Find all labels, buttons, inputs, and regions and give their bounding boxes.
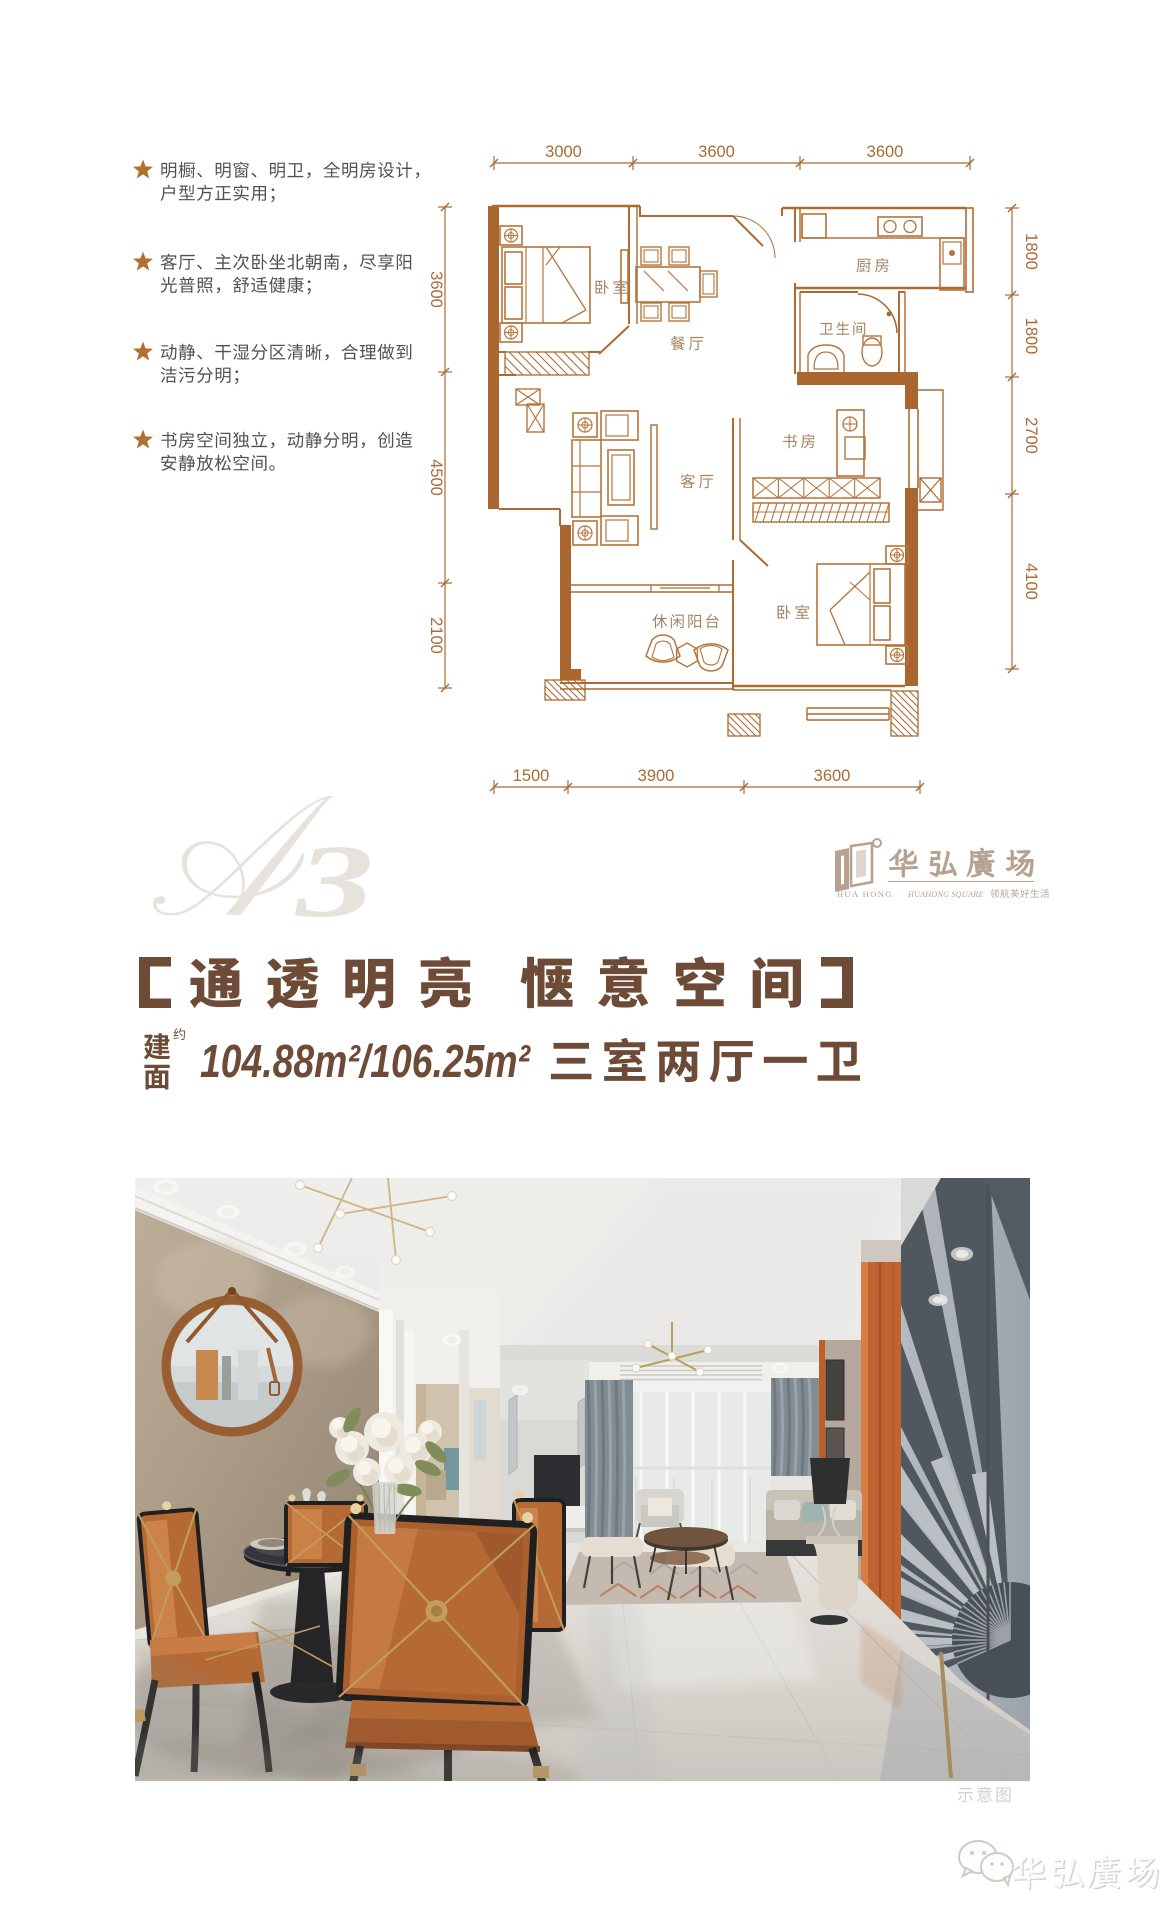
svg-text:3600: 3600: [814, 767, 851, 785]
svg-text:3: 3: [294, 823, 374, 938]
svg-text:3600: 3600: [698, 143, 735, 161]
svg-text:HUA HONG: HUA HONG: [837, 889, 893, 899]
svg-text:1500: 1500: [513, 767, 550, 785]
svg-text:1800: 1800: [1022, 233, 1040, 270]
svg-text:4100: 4100: [1022, 563, 1040, 600]
svg-text:1800: 1800: [1022, 318, 1040, 355]
svg-text:3000: 3000: [545, 143, 582, 161]
svg-text:2700: 2700: [1022, 417, 1040, 454]
svg-text:104.88m²/106.25m²: 104.88m²/106.25m²: [200, 1035, 531, 1087]
svg-text:2100: 2100: [427, 617, 445, 654]
svg-text:4500: 4500: [427, 459, 445, 496]
svg-text:3900: 3900: [638, 767, 675, 785]
svg-text:HUAHONG SQUARE: HUAHONG SQUARE: [907, 890, 984, 899]
svg-text:3600: 3600: [427, 271, 445, 308]
svg-text:3600: 3600: [867, 143, 904, 161]
